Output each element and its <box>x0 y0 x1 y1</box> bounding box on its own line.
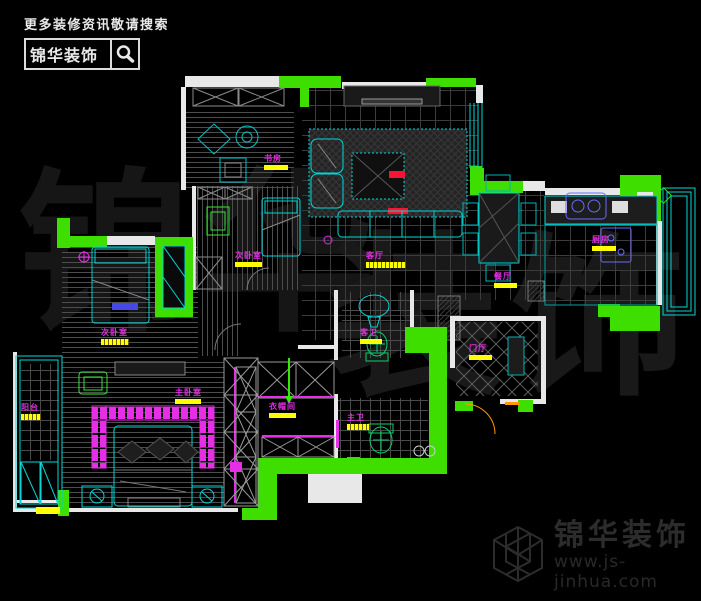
brand-name: 锦华装饰 <box>26 42 110 66</box>
top-watermark: 更多装修资讯敬请搜索 锦华装饰 <box>24 14 169 70</box>
room-label-balcony: 阳台 <box>21 404 41 420</box>
cube-wireframe-icon <box>492 525 544 587</box>
room-label-dining: 餐厅 <box>494 273 517 288</box>
room-label-kitchen: 厨房 <box>592 236 616 251</box>
footer-logo: 锦华装饰 www.js-jinhua.com <box>492 520 701 592</box>
floor-plan-drawing <box>0 0 701 601</box>
room-label-bedroom2: 次卧室 <box>235 252 262 267</box>
room-label-study: 书房 <box>264 155 288 170</box>
footer-url: www.js-jinhua.com <box>554 552 701 592</box>
room-label-master-bath: 主卫 <box>347 414 369 430</box>
green-frame-wardrobe <box>163 246 185 308</box>
footer-brand-name: 锦华装饰 <box>554 520 701 552</box>
room-label-bedroom3: 次卧室 <box>101 329 129 345</box>
room-label-guest-bath: 客卫 <box>360 329 382 344</box>
screenshot-stage: 锦华 装饰 <box>0 0 701 601</box>
magnifier-icon <box>112 42 138 66</box>
balcony-yellow-mark <box>36 507 60 514</box>
room-label-closet: 衣帽间 <box>269 403 296 418</box>
watermark-tagline: 更多装修资讯敬请搜索 <box>24 14 169 33</box>
right-balcony-window <box>663 188 695 315</box>
room-label-master-bedroom: 主卧室 <box>175 389 202 404</box>
room-label-living: 客厅 <box>366 252 406 268</box>
room-label-foyer: 门厅 <box>469 345 492 360</box>
brand-search-box: 锦华装饰 <box>24 38 140 70</box>
